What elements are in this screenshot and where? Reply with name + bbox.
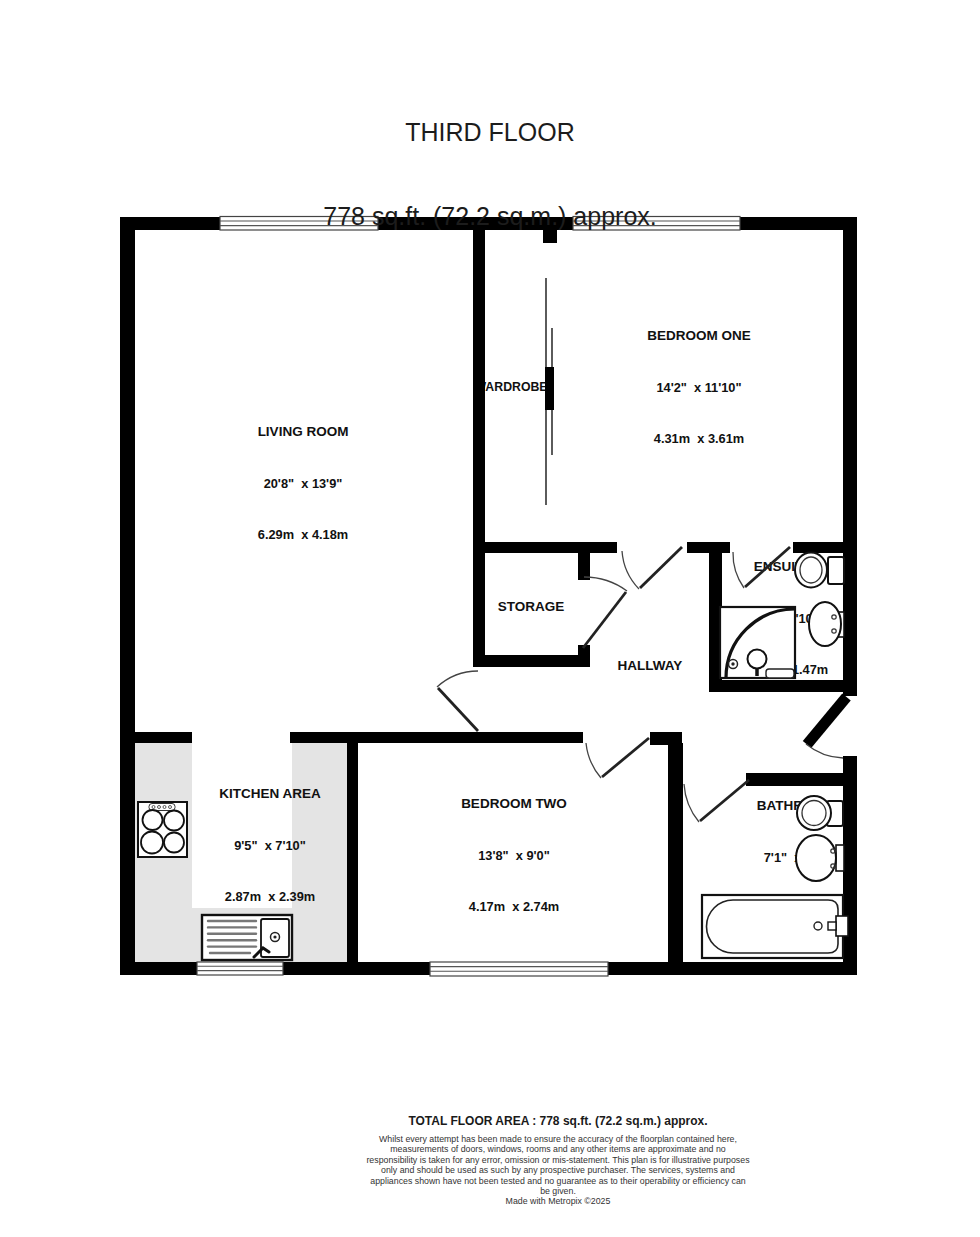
- door-leaf: [583, 592, 626, 648]
- bathtub-outer: [702, 895, 843, 958]
- walls: [120, 217, 857, 975]
- bathroom-sink-icon: [796, 835, 844, 881]
- plan-title: THIRD FLOOR 778 sq.ft. (72.2 sq.m.) appr…: [323, 62, 657, 286]
- window-frame: [197, 962, 283, 975]
- room-name: BEDROOM ONE: [647, 328, 751, 344]
- room-dim-metric: 2.17m x 1.96m: [751, 901, 841, 916]
- draining-board: [208, 921, 256, 953]
- room-dim-metric: 6.29m x 4.18m: [258, 527, 349, 542]
- sink-drain-center: [273, 935, 276, 938]
- door-storage: [583, 577, 627, 648]
- toilet-bowl-inner: [802, 801, 826, 826]
- room-dim-imperial: 9'5" x 7'10": [219, 838, 321, 853]
- room-label-kitchen: KITCHEN AREA 9'5" x 7'10" 2.87m x 2.39m: [219, 750, 321, 940]
- wardrobe-sliding-door: [545, 278, 554, 505]
- plan-footer: TOTAL FLOOR AREA : 778 sq.ft. (72.2 sq.m…: [348, 1114, 768, 1207]
- window-frame: [430, 962, 608, 976]
- hob-controls: [149, 804, 175, 811]
- wall: [120, 217, 135, 975]
- bathroom-toilet-icon: [797, 796, 843, 830]
- room-name: BATHROOM: [751, 798, 841, 814]
- kitchen-counter-bottom: [192, 908, 292, 962]
- windows: [197, 217, 740, 977]
- sink-basin: [809, 602, 841, 646]
- room-label-bathroom: BATHROOM 7'1" x 6'5" 2.17m x 1.96m: [751, 762, 841, 952]
- door-arc: [584, 577, 627, 591]
- floorplan-page: THIRD FLOOR 778 sq.ft. (72.2 sq.m.) appr…: [0, 0, 980, 1237]
- room-label-wardrobe: WARDROBE: [474, 380, 547, 394]
- toilet-cistern: [828, 557, 844, 584]
- window-bedroom-two: [430, 962, 608, 976]
- door-leaf: [745, 547, 790, 587]
- hob-burner: [164, 833, 184, 853]
- room-dim-imperial: 20'8" x 13'9": [258, 476, 349, 491]
- hob-burner: [141, 832, 163, 854]
- credit-text: Made with Metropix ©2025: [348, 1196, 768, 1207]
- wall: [746, 773, 857, 786]
- wall: [578, 645, 590, 667]
- wall: [135, 732, 192, 743]
- entrance-door-leaf: [807, 697, 847, 745]
- floor-area: 778 sq.ft. (72.2 sq.m.) approx.: [323, 202, 657, 230]
- bathtub-inner: [707, 900, 839, 953]
- door-arc: [684, 784, 699, 822]
- wall: [709, 680, 843, 692]
- room-name: KITCHEN AREA: [219, 786, 321, 802]
- room-label-hallway: HALLWAY: [618, 658, 683, 673]
- kitchen-counter-right: [292, 743, 347, 962]
- wall: [668, 743, 683, 975]
- door-bedroom-two: [586, 738, 649, 778]
- wall: [843, 756, 857, 975]
- wall: [687, 542, 730, 553]
- door-arc: [733, 552, 744, 588]
- sink-tap: [831, 864, 835, 868]
- room-name: LIVING ROOM: [258, 424, 349, 440]
- door-living-room: [437, 671, 478, 731]
- sink-tap: [254, 948, 269, 957]
- shower-step: [766, 669, 794, 678]
- sink-tap: [832, 615, 836, 619]
- wall: [793, 542, 843, 553]
- shower-screen-arc: [726, 609, 795, 678]
- sink-drain: [271, 933, 280, 942]
- wall: [650, 732, 682, 745]
- hob-icon: [138, 802, 187, 857]
- door-arc: [586, 743, 601, 778]
- toilet-bowl: [795, 553, 827, 588]
- room-dim-imperial: 7'1" x 6'5": [751, 850, 841, 865]
- door-bedroom-one: [622, 547, 682, 589]
- room-dim-metric: 4.31m x 3.61m: [647, 431, 751, 446]
- sink-tap: [831, 849, 835, 853]
- room-dim-metric: 2.87m x 2.39m: [219, 889, 321, 904]
- sink-bracket: [836, 612, 844, 637]
- wall: [485, 542, 617, 553]
- bathtub-tap: [836, 916, 848, 936]
- door-leaf: [640, 547, 682, 588]
- sink-tap: [832, 629, 836, 633]
- room-dim-imperial: 5'3" x 4'10": [738, 611, 828, 626]
- kitchen-sink-icon: [202, 915, 292, 960]
- hob-knob: [163, 806, 166, 809]
- bathroom-fixtures: [702, 796, 848, 958]
- room-dim-metric: 4.17m x 2.74m: [461, 899, 567, 914]
- floor-name: THIRD FLOOR: [323, 118, 657, 146]
- toilet-cistern: [827, 801, 843, 826]
- sliding-door-handle: [545, 367, 554, 410]
- toilet-bowl: [797, 796, 831, 830]
- window-kitchen: [197, 962, 283, 975]
- room-label-storage: STORAGE: [498, 599, 565, 614]
- wall: [290, 732, 583, 743]
- room-label-bedroom-two: BEDROOM TWO 13'8" x 9'0" 4.17m x 2.74m: [461, 760, 567, 950]
- disclaimer-text: Whilst every attempt has been made to en…: [366, 1134, 750, 1196]
- doors: [437, 547, 847, 822]
- wall: [578, 552, 590, 580]
- shower-drain: [729, 660, 738, 669]
- shower-drain-center: [731, 662, 734, 665]
- room-dim-imperial: 14'2" x 11'10": [647, 380, 751, 395]
- wall: [709, 542, 722, 692]
- room-name: ENSUITE: [738, 559, 828, 575]
- room-label-ensuite: ENSUITE 5'3" x 4'10" 1.61m x 1.47m: [738, 523, 828, 713]
- shower-icon: [720, 607, 795, 678]
- door-arc: [437, 671, 478, 687]
- room-dim-imperial: 13'8" x 9'0": [461, 848, 567, 863]
- wall: [120, 962, 857, 975]
- hob-burner: [164, 811, 184, 831]
- shower-tray: [720, 607, 795, 678]
- bathtub-spout: [828, 922, 836, 930]
- hob-burner: [143, 810, 163, 830]
- entrance-door: [806, 697, 847, 758]
- hob-knob: [158, 806, 161, 809]
- bathtub-icon: [702, 895, 848, 958]
- ensuite-fixtures: [720, 553, 844, 679]
- room-dim-metric: 1.61m x 1.47m: [738, 662, 828, 677]
- shower-head: [748, 650, 767, 669]
- ensuite-toilet-icon: [795, 553, 844, 588]
- sink-unit: [202, 915, 292, 960]
- door-leaf: [602, 738, 649, 777]
- wall: [473, 230, 485, 667]
- sink-bracket: [836, 845, 844, 871]
- sink-basin: [261, 919, 289, 957]
- hob-knob: [152, 806, 155, 809]
- room-label-living-room: LIVING ROOM 20'8" x 13'9" 6.29m x 4.18m: [258, 388, 349, 578]
- hob-knob: [169, 806, 172, 809]
- total-floor-area: TOTAL FLOOR AREA : 778 sq.ft. (72.2 sq.m…: [348, 1114, 768, 1128]
- bathtub-drain: [814, 922, 822, 930]
- hob-body: [138, 802, 187, 857]
- sink-basin: [796, 835, 836, 881]
- ensuite-sink-icon: [809, 602, 844, 646]
- door-bathroom: [684, 780, 749, 822]
- wall: [843, 217, 857, 696]
- door-ensuite: [733, 547, 790, 588]
- room-name: BEDROOM TWO: [461, 796, 567, 812]
- entrance-door-arc: [806, 744, 843, 758]
- door-leaf: [438, 688, 478, 731]
- toilet-bowl-inner: [800, 557, 822, 583]
- door-arc: [622, 551, 639, 589]
- kitchen-fixtures: [138, 802, 292, 960]
- door-leaf: [700, 780, 749, 821]
- wall: [347, 743, 358, 962]
- wall: [473, 655, 590, 667]
- room-label-bedroom-one: BEDROOM ONE 14'2" x 11'10" 4.31m x 3.61m: [647, 292, 751, 482]
- kitchen-counter-left: [135, 743, 192, 962]
